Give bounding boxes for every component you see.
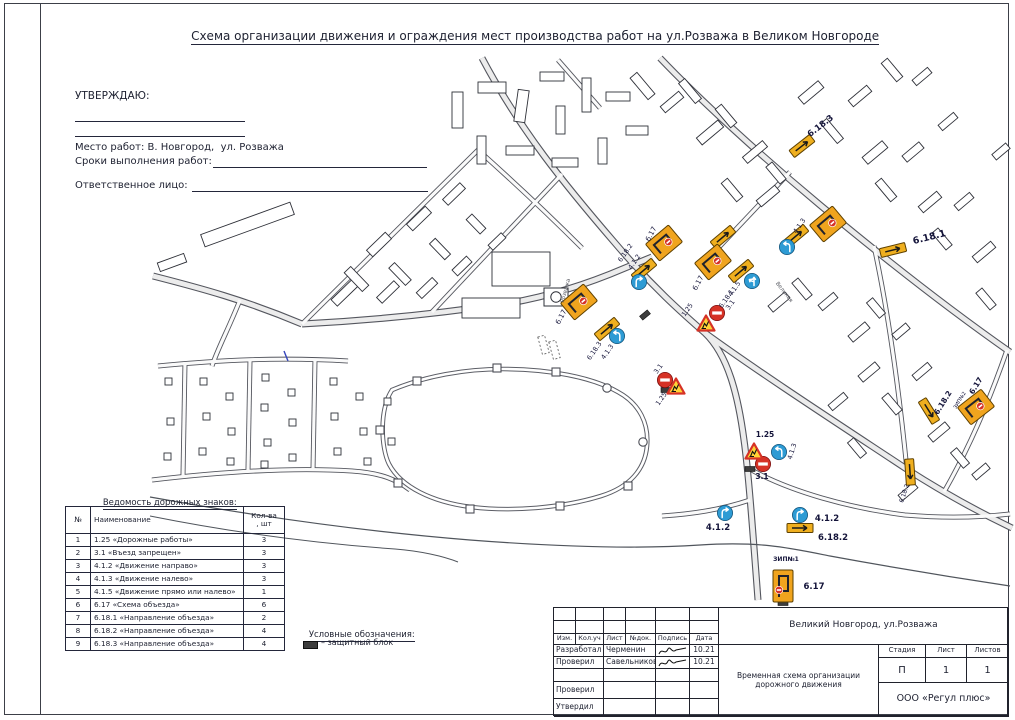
table-cell: 7: [66, 612, 91, 625]
sign-label: 6.18.2: [932, 389, 954, 416]
signs-table-col-num: №: [66, 507, 91, 534]
titleblock-cell: [604, 608, 626, 621]
table-row: 86.18.2 «Направление объезда»4: [66, 625, 285, 638]
titleblock-cell: [656, 621, 690, 634]
table-cell: 9: [66, 638, 91, 651]
titleblock-cell: [626, 608, 656, 621]
sign-label: 6.18.2: [818, 533, 848, 543]
responsible-line: [192, 191, 428, 192]
titleblock-cell: ООО «Регул плюс»: [879, 683, 1009, 717]
titleblock-cell: Подпись: [656, 634, 690, 645]
titleblock-cell: [690, 608, 719, 621]
kremlin-tower: [624, 482, 632, 490]
titleblock-cell: Разработал: [554, 645, 604, 657]
sign-413-circle-icon: [609, 328, 624, 343]
kremlin-tower: [493, 364, 501, 372]
table-cell: 4.1.3 «Движение налево»: [91, 573, 244, 586]
table-row: 54.1.5 «Движение прямо или налево»1: [66, 586, 285, 599]
table-cell: 1.25 «Дорожные работы»: [91, 534, 244, 547]
sign-618-arrow-icon: [879, 242, 906, 257]
work-terms-line: [213, 167, 427, 168]
titleblock-cell: [554, 608, 576, 621]
titleblock-cell: №док.: [626, 634, 656, 645]
table-cell: 4.1.5 «Движение прямо или налево»: [91, 586, 244, 599]
titleblock-cell: [656, 608, 690, 621]
table-cell: 6.18.1 «Направление объезда»: [91, 612, 244, 625]
titleblock-cell: Великий Новгород, ул.Розважа: [719, 608, 1009, 645]
titleblock-cell: [576, 621, 604, 634]
table-cell: 4: [244, 625, 285, 638]
table-cell: 6: [66, 599, 91, 612]
kremlin-tower: [603, 384, 611, 392]
titleblock-cell: [576, 608, 604, 621]
sign-labels: 6.18.36.18.16.174.1.56.18.14.1.33.11.256…: [554, 113, 985, 592]
titleblock-cell: Савельников: [604, 657, 656, 669]
kremlin-tower: [556, 502, 564, 510]
table-cell: 6.17 «Схема объезда»: [91, 599, 244, 612]
sign-412-circle-icon: [792, 507, 807, 522]
titleblock-cell: Проверил: [554, 682, 604, 699]
signature: [658, 657, 688, 669]
kremlin-tower: [466, 505, 474, 513]
table-cell: 3: [244, 534, 285, 547]
drawing-sheet: Схема организации движения и ограждения …: [0, 0, 1015, 720]
signs-table-col-name: Наименование: [91, 507, 244, 534]
titleblock-cell: [604, 669, 656, 682]
table-cell: 4: [244, 638, 285, 651]
sign-label: 1.25: [680, 302, 695, 318]
kremlin-tower: [552, 368, 560, 376]
kremlin-wall: [376, 364, 647, 513]
titleblock-cell: [656, 682, 690, 699]
sign-label: ЗИП№1: [773, 556, 799, 563]
titleblock-cell: [604, 682, 656, 699]
sign-31-circle-icon: [657, 372, 672, 387]
table-cell: 4: [66, 573, 91, 586]
sign-412-circle-icon: [631, 274, 646, 289]
approve-label: УТВЕРЖДАЮ:: [75, 90, 150, 102]
sign-413-circle-icon: [779, 239, 794, 254]
titleblock-cell: П: [879, 658, 926, 683]
table-row: 66.17 «Схема объезда»6: [66, 599, 285, 612]
legend-item-label: – защитный блок: [321, 638, 393, 647]
titleblock-cell: Проверил: [554, 657, 604, 669]
sign-618-arrow-icon: [787, 524, 813, 533]
kremlin-tower: [376, 426, 384, 434]
table-cell: 6.18.3 «Направление объезда»: [91, 638, 244, 651]
titleblock-cell: Листов: [967, 645, 1009, 658]
sign-617-icon: [809, 206, 846, 242]
table-cell: 2: [244, 612, 285, 625]
table-cell: 3.1 «Въезд запрещен»: [91, 547, 244, 560]
signs-table-col-qty: Кол-ва, шт: [244, 507, 285, 534]
table-row: 34.1.2 «Движение направо»3: [66, 560, 285, 573]
sign-label: 6.17: [554, 308, 568, 326]
table-cell: 3: [244, 560, 285, 573]
table-cell: 6: [244, 599, 285, 612]
titleblock-cell: 10.21: [690, 657, 719, 669]
table-cell: 5: [66, 586, 91, 599]
table-row: 44.1.3 «Движение налево»3: [66, 573, 285, 586]
table-row: 23.1 «Въезд запрещен»3: [66, 547, 285, 560]
titleblock-cell: Черменин: [604, 645, 656, 657]
titleblock-cell: Лист: [604, 634, 626, 645]
titleblock-cell: Лист: [926, 645, 967, 658]
titleblock-cell: [690, 669, 719, 682]
signature-cell: [656, 645, 690, 657]
responsible-label: Ответственное лицо:: [75, 180, 188, 191]
table-cell: 2: [66, 547, 91, 560]
table-cell: 4.1.2 «Движение направо»: [91, 560, 244, 573]
sign-412-circle-icon: [717, 505, 732, 520]
titleblock-cell: Временная схема организации дорожного дв…: [719, 645, 879, 717]
sign-label: 6.17: [804, 582, 825, 592]
sign-413-circle-icon: [771, 444, 786, 459]
titleblock-cell: Стадия: [879, 645, 926, 658]
table-cell: 3: [66, 560, 91, 573]
sign-617-icon: [773, 570, 793, 602]
signature-cell: [656, 657, 690, 669]
approve-line-2: [75, 136, 245, 137]
titleblock-cell: [690, 621, 719, 634]
table-row: 11.25 «Дорожные работы»3: [66, 534, 285, 547]
titleblock-cell: Изм.: [554, 634, 576, 645]
table-row: 76.18.1 «Направление объезда»2: [66, 612, 285, 625]
titleblock-cell: [656, 669, 690, 682]
sign-617-icon: [694, 244, 731, 280]
sign-618-arrow-icon: [905, 459, 916, 486]
table-cell: 6.18.2 «Направление объезда»: [91, 625, 244, 638]
titleblock-cell: Кол.уч: [576, 634, 604, 645]
sign-label: 4.1.3: [786, 442, 799, 460]
titleblock-cell: [626, 621, 656, 634]
titleblock-cell: [604, 699, 656, 717]
titleblock-cell: [554, 669, 604, 682]
protective-block: [640, 310, 651, 320]
titleblock-cell: [656, 699, 690, 717]
sign-label: 3.1: [755, 472, 768, 481]
protective-block: [745, 467, 755, 472]
table-row: 96.18.3 «Направление объезда»4: [66, 638, 285, 651]
sign-label: 4.1.2: [706, 523, 730, 533]
titleblock-cell: [554, 621, 576, 634]
sign-415-circle-icon: [744, 273, 759, 288]
titleblock-cell: 1: [926, 658, 967, 683]
sign-label: 6.17: [691, 274, 705, 292]
titleblock-cell: [690, 699, 719, 717]
sign-label: 4.1.2: [815, 514, 839, 524]
titleblock-cell: Дата: [690, 634, 719, 645]
table-cell: 1: [66, 534, 91, 547]
kremlin-tower: [639, 438, 647, 446]
protective-block-swatch: [303, 641, 318, 649]
table-cell: 1: [244, 586, 285, 599]
titleblock-cell: 1: [967, 658, 1009, 683]
signs-table: № Наименование Кол-ва, шт 11.25 «Дорожны…: [65, 506, 285, 651]
kremlin-tower: [413, 377, 421, 385]
table-cell: 3: [244, 573, 285, 586]
signature: [658, 645, 688, 657]
table-cell: 3: [244, 547, 285, 560]
approve-line-1: [75, 121, 245, 122]
table-cell: 8: [66, 625, 91, 638]
kremlin-tower: [394, 479, 402, 487]
titleblock-cell: Утвердил: [554, 699, 604, 717]
work-place-label: Место работ: В. Новгород, ул. Розважа: [75, 142, 284, 153]
title-block: Изм.Кол.учЛист№док.ПодписьДатаРазработал…: [553, 607, 1008, 716]
titleblock-cell: [690, 682, 719, 699]
sign-label: 1.25: [756, 430, 775, 439]
work-terms-label: Сроки выполнения работ:: [75, 156, 212, 167]
titleblock-cell: 10.21: [690, 645, 719, 657]
titleblock-cell: [604, 621, 626, 634]
